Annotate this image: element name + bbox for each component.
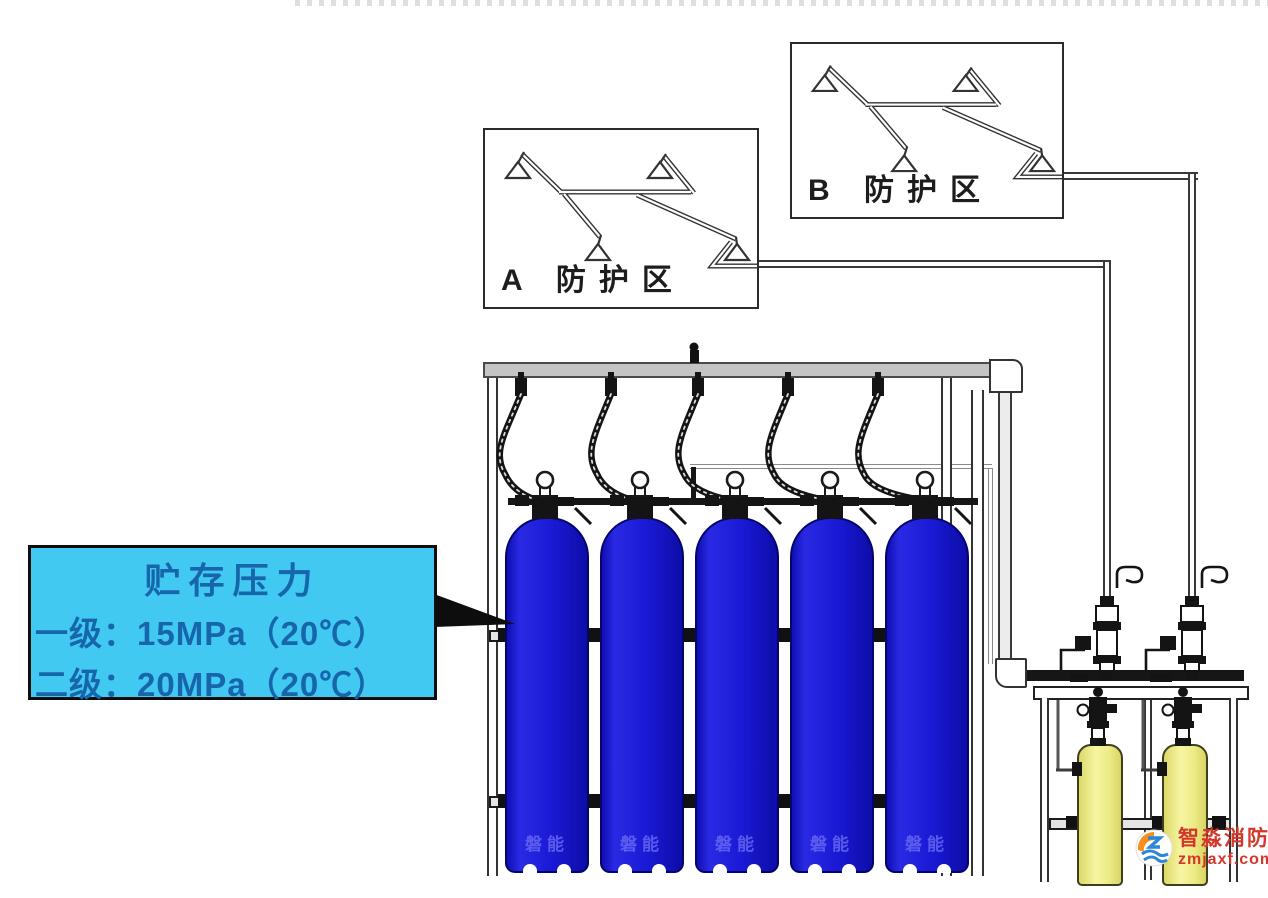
pilot-bench-top [1033, 686, 1249, 700]
cylinder-base-notch [618, 864, 632, 873]
cylinder-neck [722, 503, 748, 519]
cylinder-base-notch [747, 864, 761, 873]
supply-bottom-elbow [995, 658, 1027, 688]
cylinder-base-notch [937, 864, 951, 873]
selector-valve-b [1146, 567, 1227, 679]
cylinder-base-notch [523, 864, 537, 873]
nozzle-icons [813, 66, 1054, 172]
zone-b-supply-pipe-horizontal [1058, 172, 1198, 180]
selector-feed-pipe [1016, 670, 1244, 681]
flexible-hoses [500, 394, 911, 498]
cylinder-neck [912, 503, 938, 519]
cylinder-base-notch [842, 864, 856, 873]
cylinder-base-notch [713, 864, 727, 873]
cylinder-brand-watermark: 磐能 [887, 830, 967, 855]
zone-b-supply-pipe-riser [1188, 174, 1196, 596]
selector-valve-a [1061, 567, 1142, 679]
cylinder-base-notch [808, 864, 822, 873]
agent-cylinder: 磐能 [600, 517, 684, 873]
cylinder-brand-watermark: 磐能 [792, 830, 872, 855]
collecting-manifold-pipe [483, 362, 997, 378]
callout-line-2: 二级：20MPa（20℃） [35, 658, 434, 706]
agent-cylinder: 磐能 [790, 517, 874, 873]
cylinder-neck [817, 503, 843, 519]
agent-cylinder: 磐能 [695, 517, 779, 873]
callout-line-1: 一级：15MPa（20℃） [35, 607, 434, 655]
protection-zone-b-box: B 防护区 [790, 42, 1064, 219]
pilot-cylinder [1077, 744, 1123, 886]
zone-a-label: A 防护区 [501, 255, 685, 299]
cylinder-neck [532, 503, 558, 519]
storage-pressure-callout: 贮存压力 一级：15MPa（20℃） 二级：20MPa（20℃） [28, 545, 437, 700]
cropped-text-artifact [295, 0, 1268, 6]
cylinder-base-notch [557, 864, 571, 873]
zone-a-supply-pipe-horizontal [753, 260, 1111, 268]
cylinder-base-notch [652, 864, 666, 873]
cylinder-brand-watermark: 磐能 [697, 830, 777, 855]
callout-arrow [434, 594, 515, 627]
watermark-domain-text: zmjaxf.com [1178, 852, 1268, 868]
pilot-line-vertical [988, 468, 993, 664]
zone-a-supply-pipe-riser [1103, 262, 1111, 596]
watermark-brand-text: 智淼消防 [1178, 828, 1268, 849]
callout-title: 贮存压力 [31, 552, 434, 604]
nozzle-icons [506, 152, 749, 260]
protection-zone-a-box: A 防护区 [483, 128, 759, 309]
zone-b-label: B 防护区 [808, 165, 993, 209]
cylinder-base-notch [903, 864, 917, 873]
agent-cylinder: 磐能 [505, 517, 589, 873]
gas-suppression-system-diagram: 磐能 磐能 磐能 磐能 磐能 [0, 0, 1268, 898]
zhimiao-logo-icon [1134, 828, 1174, 868]
agent-cylinder: 磐能 [885, 517, 969, 873]
cylinder-brand-watermark: 磐能 [602, 830, 682, 855]
cylinder-neck [627, 503, 653, 519]
manifold-downpipe [998, 391, 1012, 663]
manifold-end-elbow [989, 359, 1023, 393]
pilot-bench-leg-left [1040, 698, 1049, 882]
rack-side-rail [971, 390, 984, 876]
site-watermark: 智淼消防 zmjaxf.com [1134, 828, 1268, 868]
cylinder-brand-watermark: 磐能 [507, 830, 587, 855]
manifold-safety-knob [690, 343, 700, 364]
